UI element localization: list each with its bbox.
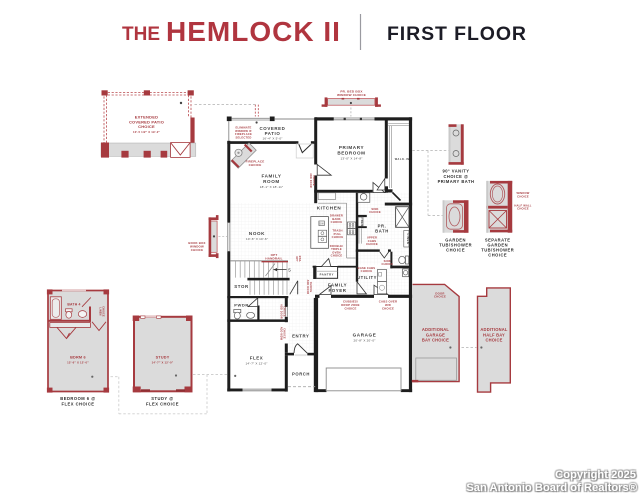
svg-text:PRIMARY BATH: PRIMARY BATH — [438, 179, 475, 184]
svg-text:CHOICE: CHOICE — [446, 248, 465, 253]
svg-text:BEDROOM: BEDROOM — [337, 151, 365, 156]
svg-text:PWDR: PWDR — [234, 302, 249, 307]
svg-text:FAMILY: FAMILY — [328, 283, 347, 288]
svg-text:LINEN: LINEN — [360, 217, 363, 227]
svg-text:ADD DOOR: ADD DOOR — [280, 304, 283, 319]
svg-text:CHOICE: CHOICE — [381, 262, 393, 266]
svg-text:BATH: BATH — [375, 229, 389, 234]
svg-text:CHOICE: CHOICE — [517, 207, 529, 211]
svg-text:CHOICE: CHOICE — [382, 306, 394, 310]
svg-text:20′-8″ X 20′-0″: 20′-8″ X 20′-0″ — [354, 339, 376, 343]
svg-text:HEMLOCK II: HEMLOCK II — [166, 16, 341, 47]
svg-text:CHOICE: CHOICE — [138, 124, 155, 129]
svg-text:STUDY @: STUDY @ — [151, 396, 173, 401]
svg-text:13′-0″ X 14′-8″: 13′-0″ X 14′-8″ — [341, 156, 363, 160]
svg-text:CHOICE: CHOICE — [331, 220, 343, 224]
svg-text:PRIMARY: PRIMARY — [339, 145, 364, 150]
svg-text:ADD DOOR: ADD DOOR — [306, 280, 309, 295]
svg-text:ADDITIONAL: ADDITIONAL — [422, 327, 450, 332]
svg-text:FOYER: FOYER — [328, 288, 346, 293]
svg-text:ADDITIONAL: ADDITIONAL — [480, 327, 508, 332]
svg-text:CHOICE: CHOICE — [283, 328, 286, 339]
svg-text:FLEX CHOICE: FLEX CHOICE — [61, 402, 94, 407]
svg-text:CHOICE: CHOICE — [332, 235, 344, 239]
svg-text:14′-7″ X 12′-0″: 14′-7″ X 12′-0″ — [152, 360, 174, 364]
svg-text:NOOK: NOOK — [249, 231, 265, 236]
svg-text:HANDRAIL: HANDRAIL — [265, 256, 282, 260]
svg-text:5: 5 — [288, 268, 291, 273]
svg-text:12′-6″ X 12′-0″: 12′-6″ X 12′-0″ — [67, 360, 89, 364]
svg-text:CHOICE: CHOICE — [283, 306, 286, 317]
svg-text:ADD WDW: ADD WDW — [280, 327, 283, 341]
svg-text:FLEX CHOICE: FLEX CHOICE — [146, 402, 179, 407]
svg-text:10′-6″ X 10′-6″: 10′-6″ X 10′-6″ — [246, 237, 268, 241]
svg-text:BDRM 6: BDRM 6 — [70, 355, 86, 359]
svg-text:THE: THE — [122, 24, 160, 45]
svg-text:CHOICE: CHOICE — [191, 248, 203, 252]
svg-text:PORCH: PORCH — [292, 371, 310, 376]
svg-text:CHOICE: CHOICE — [344, 306, 356, 310]
svg-text:CHOICE: CHOICE — [366, 242, 378, 246]
svg-text:FIRST FLOOR: FIRST FLOOR — [387, 23, 527, 45]
svg-text:OPT: OPT — [295, 256, 298, 262]
svg-text:FLEX: FLEX — [250, 356, 264, 361]
svg-text:STUDY: STUDY — [156, 355, 170, 359]
svg-text:ADD DOOR: ADD DOOR — [309, 173, 312, 188]
svg-text:CHOICE: CHOICE — [309, 282, 312, 293]
svg-text:RAIL: RAIL — [298, 256, 301, 263]
svg-text:GARAGE: GARAGE — [353, 333, 377, 338]
svg-text:CHOICE: CHOICE — [369, 210, 381, 214]
svg-text:CHOICE: CHOICE — [312, 175, 315, 186]
svg-text:CHOICE: CHOICE — [102, 306, 105, 317]
svg-text:STOR: STOR — [234, 284, 249, 289]
svg-text:CHOICE: CHOICE — [485, 338, 502, 343]
svg-text:PATIO: PATIO — [265, 131, 281, 136]
svg-text:CHOICE: CHOICE — [488, 253, 507, 258]
svg-text:ENTRY: ENTRY — [292, 333, 309, 338]
svg-text:14′-7″ X 12′-0″: 14′-7″ X 12′-0″ — [246, 362, 268, 366]
svg-text:BAY CHOICE: BAY CHOICE — [422, 338, 449, 343]
svg-text:WALK-IN: WALK-IN — [395, 158, 410, 161]
svg-text:DW: DW — [319, 222, 324, 226]
svg-text:San Antonio Board of Realtors®: San Antonio Board of Realtors® — [466, 482, 637, 494]
svg-text:HALF BAY: HALF BAY — [483, 332, 505, 337]
svg-text:CHOICE: CHOICE — [331, 254, 343, 258]
svg-text:ROOM: ROOM — [263, 179, 280, 184]
svg-text:BATH 4: BATH 4 — [67, 302, 80, 306]
svg-text:LINEN: LINEN — [99, 307, 102, 315]
svg-text:CHOICE: CHOICE — [434, 295, 446, 299]
svg-text:Copyright 2025: Copyright 2025 — [555, 469, 636, 481]
svg-text:CHOICE: CHOICE — [249, 163, 262, 167]
svg-text:PANTRY: PANTRY — [320, 273, 334, 277]
svg-text:SELECTED: SELECTED — [236, 136, 252, 140]
svg-text:CHOICE: CHOICE — [361, 269, 373, 273]
svg-text:FAMILY: FAMILY — [261, 174, 281, 179]
svg-text:16′-4″ X 5′-0″: 16′-4″ X 5′-0″ — [262, 137, 282, 141]
svg-text:10′-5 1/2″ X 19′-2″: 10′-5 1/2″ X 19′-2″ — [133, 130, 161, 134]
svg-text:LINEN: LINEN — [406, 234, 410, 245]
svg-text:KITCHEN: KITCHEN — [317, 206, 342, 211]
svg-text:BEDROOM 6 @: BEDROOM 6 @ — [60, 396, 95, 401]
svg-text:GARAGE: GARAGE — [426, 332, 445, 337]
svg-text:CHOICE: CHOICE — [517, 194, 529, 198]
svg-text:UTILITY: UTILITY — [357, 275, 377, 280]
svg-text:WINDOW CHOICE: WINDOW CHOICE — [337, 93, 366, 97]
svg-text:18′-1″ X 18′-11″: 18′-1″ X 18′-11″ — [260, 185, 284, 189]
